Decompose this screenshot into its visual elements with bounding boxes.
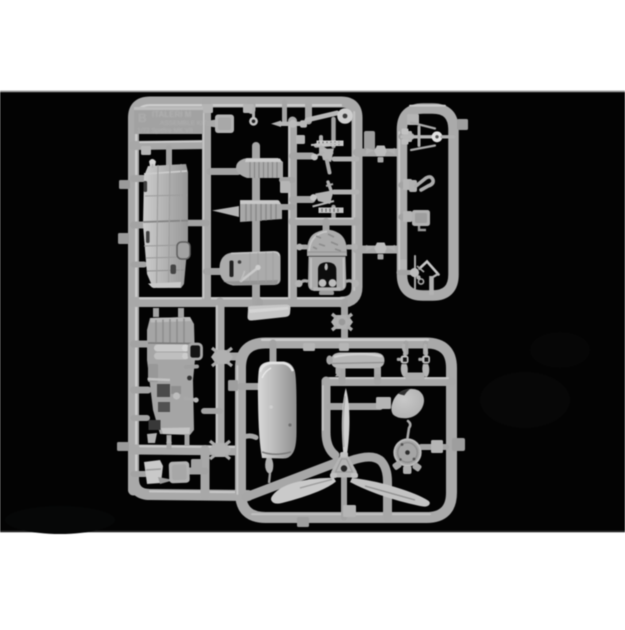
svg-text:ITALERI M: ITALERI M bbox=[152, 110, 192, 119]
svg-text:ASSEMBLE KIT: ASSEMBLE KIT bbox=[160, 120, 207, 127]
svg-text:1/72 Spitfire MK.VII: 1/72 Spitfire MK.VII bbox=[137, 128, 193, 135]
svg-text:B: B bbox=[138, 111, 147, 125]
